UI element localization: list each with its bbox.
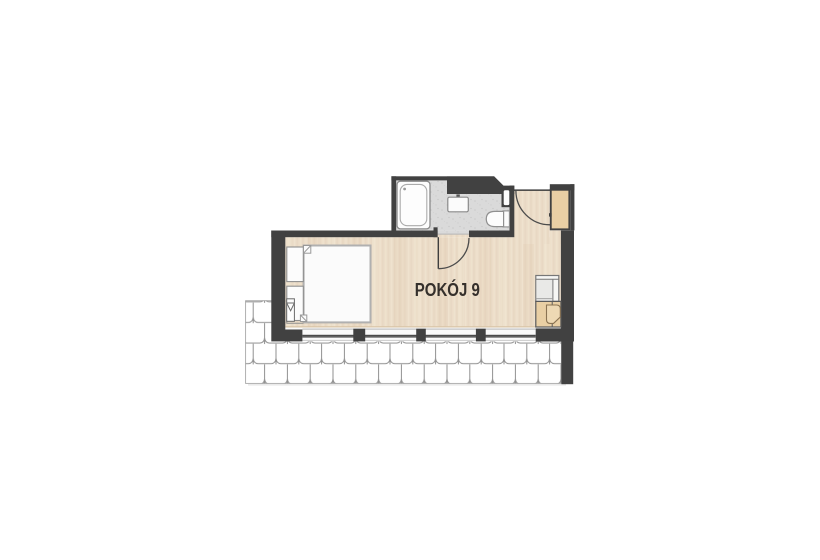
svg-text:POKÓJ 9: POKÓJ 9 — [415, 279, 480, 300]
